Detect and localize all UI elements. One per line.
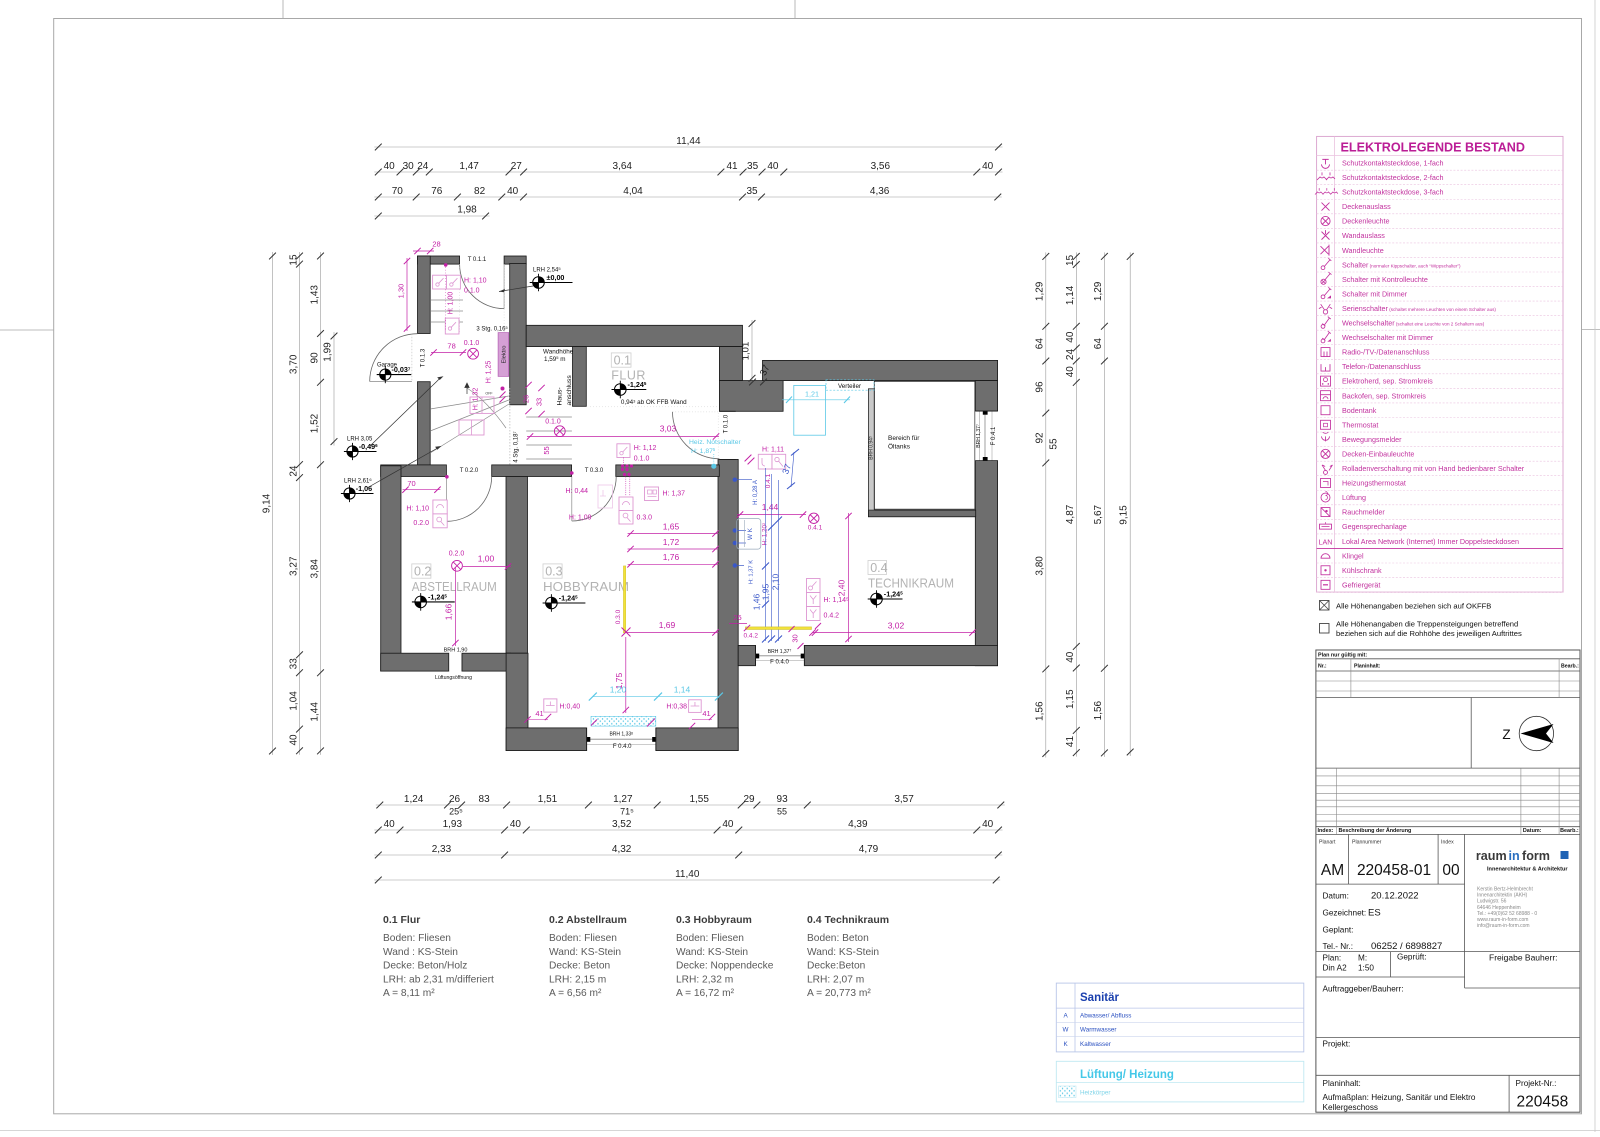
svg-text:1,56: 1,56 <box>1035 701 1046 721</box>
svg-text:0.2 Abstellraum: 0.2 Abstellraum <box>549 914 627 926</box>
svg-text:F 0.4.1: F 0.4.1 <box>991 426 997 445</box>
svg-text:A = 8,11 m²: A = 8,11 m² <box>383 988 435 999</box>
svg-text:Tel.: +49(0)62 52 68988 - 0: Tel.: +49(0)62 52 68988 - 0 <box>1477 911 1537 917</box>
svg-text:Klingel: Klingel <box>1342 551 1364 560</box>
svg-text:26: 26 <box>449 794 461 805</box>
svg-text:Decken-Einbauleuchte: Decken-Einbauleuchte <box>1342 449 1414 458</box>
svg-text:0.3.0: 0.3.0 <box>637 515 653 522</box>
svg-text:in: in <box>1509 849 1520 863</box>
svg-text:83: 83 <box>479 794 491 805</box>
svg-text:Wand: KS-Stein: Wand: KS-Stein <box>807 947 879 958</box>
svg-text:11,40: 11,40 <box>675 869 700 880</box>
svg-text:Beschreibung der Änderung: Beschreibung der Änderung <box>1339 827 1412 834</box>
svg-text:0.2: 0.2 <box>414 564 431 578</box>
svg-text:1,595 m: 1,595 m <box>544 355 566 363</box>
svg-text:1,44: 1,44 <box>309 702 320 722</box>
svg-text:90: 90 <box>309 352 320 364</box>
svg-text:LRH: 2,07 m: LRH: 2,07 m <box>807 974 864 985</box>
svg-text:1,21: 1,21 <box>805 390 819 399</box>
svg-text:Alle Höhenangaben beziehen sic: Alle Höhenangaben beziehen sich auf OKFF… <box>1336 602 1491 611</box>
svg-text:H: 1,10: H: 1,10 <box>406 506 429 513</box>
svg-text:1,20: 1,20 <box>610 684 627 694</box>
svg-text:24: 24 <box>1065 349 1076 361</box>
svg-text:1,52: 1,52 <box>309 413 320 433</box>
svg-text:1,44: 1,44 <box>762 502 779 512</box>
svg-text:0.3: 0.3 <box>545 564 562 578</box>
svg-text:BRH 1,377: BRH 1,377 <box>768 649 792 655</box>
svg-text:71⁵: 71⁵ <box>620 807 634 817</box>
svg-text:T 0.1.1: T 0.1.1 <box>468 257 487 263</box>
svg-text:1,51: 1,51 <box>538 794 558 805</box>
svg-text:OFF: OFF <box>485 392 493 396</box>
svg-text:40: 40 <box>384 819 396 830</box>
svg-text:info@raum-in-form.com: info@raum-in-form.com <box>1477 923 1530 929</box>
svg-text:Backofen, sep. Stromkreis: Backofen, sep. Stromkreis <box>1342 391 1426 400</box>
svg-text:Index: Index <box>1441 840 1454 846</box>
svg-text:Kerstin Bertz-Helmbrecht: Kerstin Bertz-Helmbrecht <box>1477 887 1533 893</box>
svg-text:55: 55 <box>1049 438 1060 450</box>
svg-text:0.1.0: 0.1.0 <box>545 419 561 426</box>
svg-text:40: 40 <box>507 186 519 197</box>
svg-text:H: 1,10: H: 1,10 <box>464 278 487 285</box>
svg-text:Bodentank: Bodentank <box>1342 406 1377 415</box>
svg-text:Gegensprechanlage: Gegensprechanlage <box>1342 522 1407 531</box>
svg-text:Deckenauslass: Deckenauslass <box>1342 202 1391 211</box>
svg-text:1,43: 1,43 <box>309 285 320 305</box>
svg-text:Schutzkontaktsteckdose, 2-fach: Schutzkontaktsteckdose, 2-fach <box>1342 173 1443 182</box>
svg-text:3,80: 3,80 <box>1035 556 1046 576</box>
svg-text:40: 40 <box>722 819 734 830</box>
svg-text:1,95: 1,95 <box>761 583 771 600</box>
svg-text:Projekt:: Projekt: <box>1323 1040 1351 1049</box>
svg-text:Aufmaßplan: Heizung, Sanitär u: Aufmaßplan: Heizung, Sanitär und Elektro <box>1323 1093 1476 1102</box>
svg-text:Decke:Beton: Decke:Beton <box>807 961 865 972</box>
svg-text:Wandleuchte: Wandleuchte <box>1342 246 1384 255</box>
svg-text:Plannummer: Plannummer <box>1352 840 1382 846</box>
svg-text:Radio-/TV-/Datenanschluss: Radio-/TV-/Datenanschluss <box>1342 348 1430 357</box>
svg-text:1,55: 1,55 <box>689 794 709 805</box>
svg-text:40: 40 <box>288 734 299 746</box>
svg-text:1,00: 1,00 <box>478 554 495 564</box>
svg-text:Ludwigstr. 56: Ludwigstr. 56 <box>1477 899 1507 905</box>
svg-text:41: 41 <box>726 161 738 172</box>
svg-text:35: 35 <box>747 161 759 172</box>
svg-text:Warmwasser: Warmwasser <box>1080 1027 1117 1034</box>
svg-text:Thermostat: Thermostat <box>1342 420 1378 429</box>
svg-text:1,14: 1,14 <box>1065 285 1076 305</box>
svg-text:1,29: 1,29 <box>1093 281 1104 301</box>
svg-text:41: 41 <box>535 709 543 718</box>
svg-text:Decke: Beton: Decke: Beton <box>549 961 610 972</box>
svg-text:Alle Höhenangaben die Treppens: Alle Höhenangaben die Treppensteigungen … <box>1336 620 1518 629</box>
svg-text:form: form <box>1522 849 1550 863</box>
svg-text:15: 15 <box>288 254 299 266</box>
svg-text:Projekt-Nr.:: Projekt-Nr.: <box>1516 1079 1557 1088</box>
svg-text:1,56: 1,56 <box>1093 700 1104 720</box>
svg-text:3 Stg. 0,165: 3 Stg. 0,165 <box>476 326 507 332</box>
svg-text:Wand: KS-Stein: Wand: KS-Stein <box>676 947 748 958</box>
svg-text:1,65: 1,65 <box>663 521 680 531</box>
svg-text:T 0.1.0: T 0.1.0 <box>724 414 730 433</box>
svg-text:F 0.4.0: F 0.4.0 <box>770 660 789 666</box>
svg-text:92: 92 <box>1035 432 1046 444</box>
svg-text:H: 1,32: H: 1,32 <box>473 388 480 411</box>
svg-text:Lokal Area Network (Internet): Lokal Area Network (Internet) Immer Dopp… <box>1342 537 1519 546</box>
svg-text:00: 00 <box>1442 862 1460 879</box>
svg-text:0.1: 0.1 <box>614 353 631 367</box>
svg-text:0.1 Flur: 0.1 Flur <box>383 914 420 926</box>
svg-text:AM: AM <box>1321 862 1344 879</box>
svg-text:5,67: 5,67 <box>1093 504 1104 524</box>
svg-text:M:: M: <box>1358 954 1367 963</box>
svg-text:4,87: 4,87 <box>1065 504 1076 524</box>
svg-text:TECHNIKRAUM: TECHNIKRAUM <box>868 577 954 591</box>
svg-text:Decke: Noppendecke: Decke: Noppendecke <box>676 961 774 972</box>
svg-text:T 0.3.0: T 0.3.0 <box>585 468 604 474</box>
svg-text:40: 40 <box>1065 651 1076 663</box>
svg-text:27: 27 <box>511 161 523 172</box>
svg-text:Elektroherd, sep. Stromkreis: Elektroherd, sep. Stromkreis <box>1342 377 1433 386</box>
svg-text:0.3.0: 0.3.0 <box>615 609 622 624</box>
svg-text:1,69: 1,69 <box>659 620 676 630</box>
svg-text:41: 41 <box>702 709 710 718</box>
svg-text:Schalter mit Kontrolleuchte: Schalter mit Kontrolleuchte <box>1342 275 1428 284</box>
svg-text:Elektro: Elektro <box>502 345 508 363</box>
svg-text:1,27: 1,27 <box>613 794 633 805</box>
svg-text:35: 35 <box>746 186 758 197</box>
svg-text:Wand : KS-Stein: Wand : KS-Stein <box>383 947 458 958</box>
svg-text:3,52: 3,52 <box>612 819 632 830</box>
svg-text:3,64: 3,64 <box>613 161 633 172</box>
svg-text:Gezeichnet:: Gezeichnet: <box>1323 909 1367 918</box>
svg-text:Bereich für: Bereich für <box>888 435 920 442</box>
svg-text:H: 1,12: H: 1,12 <box>634 445 657 452</box>
svg-text:40: 40 <box>384 161 396 172</box>
svg-text:W: W <box>1063 1027 1069 1034</box>
svg-text:Planinhalt:: Planinhalt: <box>1323 1079 1361 1088</box>
svg-text:beziehen sich auf die Rohhöhe: beziehen sich auf die Rohhöhe des jeweil… <box>1336 629 1522 638</box>
svg-text:Auftraggeber/Bauherr:: Auftraggeber/Bauherr: <box>1323 985 1404 994</box>
svg-text:H: 1,37 K: H: 1,37 K <box>749 560 755 584</box>
svg-text:Verteiler: Verteiler <box>838 383 861 390</box>
svg-text:40: 40 <box>1065 366 1076 378</box>
svg-text:55: 55 <box>777 807 787 817</box>
svg-text:Datum:: Datum: <box>1523 828 1542 834</box>
svg-text:41: 41 <box>1065 736 1076 748</box>
svg-text:1,66: 1,66 <box>444 603 454 620</box>
svg-text:Abwasser/ Abfluss: Abwasser/ Abfluss <box>1080 1013 1131 1020</box>
svg-text:raum: raum <box>1476 849 1507 863</box>
svg-text:1,24: 1,24 <box>404 794 424 805</box>
svg-text:ELEKTROLEGENDE BESTAND: ELEKTROLEGENDE BESTAND <box>1341 141 1526 155</box>
svg-text:BRH 1,338: BRH 1,338 <box>609 731 633 737</box>
svg-text:Index:: Index: <box>1318 828 1334 834</box>
svg-text:Schutzkontaktsteckdose, 1-fach: Schutzkontaktsteckdose, 1-fach <box>1342 158 1443 167</box>
svg-text:Boden: Fliesen: Boden: Fliesen <box>383 933 451 944</box>
svg-text:1,93: 1,93 <box>443 819 463 830</box>
svg-text:LAN: LAN <box>1319 537 1333 546</box>
svg-text:Nr.:: Nr.: <box>1318 664 1327 670</box>
svg-text:A = 6,56 m²: A = 6,56 m² <box>549 988 602 999</box>
svg-text:0.4.1: 0.4.1 <box>765 473 772 488</box>
svg-text:Öltanks: Öltanks <box>888 443 911 451</box>
svg-text:Bearb.:: Bearb.: <box>1561 664 1579 670</box>
svg-text:H:0,38: H:0,38 <box>666 704 687 711</box>
svg-text:H: 1,202: H: 1,202 <box>761 522 769 545</box>
svg-text:4,79: 4,79 <box>859 844 879 855</box>
svg-text:Innenarchitektin (AKH): Innenarchitektin (AKH) <box>1477 893 1528 899</box>
svg-text:anschluss: anschluss <box>566 375 573 406</box>
svg-text:Heiz. Notschalter: Heiz. Notschalter <box>689 439 741 446</box>
svg-text:0.2.0: 0.2.0 <box>449 551 465 558</box>
svg-text:2,40: 2,40 <box>837 579 847 596</box>
svg-text:LRH: ab 2,31 m/differiert: LRH: ab 2,31 m/differiert <box>383 974 494 985</box>
svg-text:24: 24 <box>288 465 299 477</box>
svg-text:0.4.2: 0.4.2 <box>824 613 840 620</box>
svg-text:0.1.0: 0.1.0 <box>464 288 480 295</box>
svg-text:BRH 1,90: BRH 1,90 <box>444 647 468 653</box>
svg-text:H: 1,09: H: 1,09 <box>569 515 592 522</box>
svg-text:F 0.4.0: F 0.4.0 <box>613 744 632 750</box>
svg-text:3,84: 3,84 <box>309 559 320 579</box>
svg-text:96: 96 <box>1035 381 1046 393</box>
svg-text:Haus-: Haus- <box>557 387 564 405</box>
svg-text:70: 70 <box>392 186 404 197</box>
svg-text:40: 40 <box>1065 331 1076 343</box>
svg-text:1,30: 1,30 <box>397 284 406 299</box>
svg-text:Planart: Planart <box>1319 840 1336 846</box>
svg-text:BRH 0,945: BRH 0,945 <box>868 436 874 460</box>
svg-text:H: 0,44: H: 0,44 <box>566 488 589 495</box>
svg-text:25: 25 <box>733 613 741 622</box>
svg-text:Gefriergerät: Gefriergerät <box>1342 580 1380 589</box>
svg-text:1,98: 1,98 <box>457 205 477 216</box>
svg-text:0.1.0: 0.1.0 <box>634 456 650 463</box>
svg-text:33: 33 <box>535 398 544 406</box>
svg-text:0.4.1: 0.4.1 <box>808 525 823 532</box>
svg-text:Din A2: Din A2 <box>1323 964 1348 973</box>
svg-text:29: 29 <box>743 794 755 805</box>
svg-text:Tel.- Nr.:: Tel.- Nr.: <box>1323 942 1353 951</box>
svg-text:Lüftung: Lüftung <box>1342 493 1366 502</box>
svg-text:55: 55 <box>542 446 551 454</box>
svg-text:2,10: 2,10 <box>771 573 781 590</box>
svg-text:BRH 1,377: BRH 1,377 <box>976 424 982 448</box>
svg-text:4 Stg. 0,187: 4 Stg. 0,187 <box>513 431 519 462</box>
svg-text:9,15: 9,15 <box>1119 505 1130 525</box>
svg-text:64646 Heppenheim: 64646 Heppenheim <box>1477 905 1521 911</box>
svg-text:ES: ES <box>1368 908 1381 919</box>
svg-text:Boden: Fliesen: Boden: Fliesen <box>549 933 617 944</box>
svg-text:0.4: 0.4 <box>870 561 887 575</box>
svg-text:40: 40 <box>510 819 522 830</box>
svg-text:3,03: 3,03 <box>660 424 677 434</box>
svg-text:Lüftung/ Heizung: Lüftung/ Heizung <box>1080 1069 1174 1081</box>
svg-text:H: 1,875: H: 1,875 <box>691 447 716 455</box>
svg-text:40: 40 <box>982 819 994 830</box>
svg-text:28: 28 <box>432 240 440 249</box>
svg-text:Rauchmelder: Rauchmelder <box>1342 508 1385 517</box>
svg-text:4,04: 4,04 <box>623 186 643 197</box>
svg-text:Sanitär: Sanitär <box>1080 992 1120 1004</box>
svg-text:1,99: 1,99 <box>323 342 334 362</box>
svg-text:1,29: 1,29 <box>1035 281 1046 301</box>
svg-text:Boden: Fliesen: Boden: Fliesen <box>676 933 744 944</box>
svg-text:www.raum-in-form.com: www.raum-in-form.com <box>1477 917 1528 923</box>
svg-text:93: 93 <box>777 794 789 805</box>
svg-text:1,47: 1,47 <box>459 161 479 172</box>
svg-text:1,01: 1,01 <box>741 342 752 361</box>
svg-text:78: 78 <box>447 342 455 351</box>
svg-text:4,36: 4,36 <box>870 186 890 197</box>
svg-text:Plan:: Plan: <box>1323 954 1342 963</box>
svg-text:Innenarchitektur & Architektur: Innenarchitektur & Architektur <box>1487 866 1568 872</box>
svg-text:Heizungsthermostat: Heizungsthermostat <box>1342 479 1406 488</box>
svg-text:Wand: KS-Stein: Wand: KS-Stein <box>549 947 621 958</box>
svg-text:220458: 220458 <box>1517 1094 1569 1111</box>
svg-text:1:50: 1:50 <box>1358 964 1374 973</box>
svg-text:0.3 Hobbyraum: 0.3 Hobbyraum <box>676 914 752 926</box>
svg-text:Z: Z <box>1502 727 1510 742</box>
svg-text:Bearb.:: Bearb.: <box>1560 828 1579 834</box>
svg-text:64: 64 <box>1093 338 1104 350</box>
svg-text:-1,06: -1,06 <box>356 484 372 493</box>
svg-text:3,57: 3,57 <box>894 794 914 805</box>
svg-text:0.4.2: 0.4.2 <box>744 633 759 640</box>
svg-text:Geplant:: Geplant: <box>1323 926 1354 935</box>
svg-text:1,14: 1,14 <box>674 684 691 694</box>
svg-text:LRH: 2,15 m: LRH: 2,15 m <box>549 974 606 985</box>
svg-text:4,32: 4,32 <box>612 844 632 855</box>
svg-text:Wandauslass: Wandauslass <box>1342 231 1385 240</box>
svg-text:A = 20,773 m²: A = 20,773 m² <box>807 988 871 999</box>
svg-text:26: 26 <box>522 395 531 403</box>
svg-text:±0,00: ±0,00 <box>547 273 565 282</box>
svg-text:11,44: 11,44 <box>676 136 701 147</box>
svg-text:40: 40 <box>982 161 994 172</box>
svg-text:Heizkörper: Heizkörper <box>1080 1090 1110 1097</box>
svg-text:Planinhalt:: Planinhalt: <box>1354 664 1381 670</box>
svg-text:76: 76 <box>431 186 443 197</box>
svg-text:T 0.1.3: T 0.1.3 <box>421 348 427 367</box>
svg-text:2,33: 2,33 <box>432 844 452 855</box>
svg-text:Geprüft:: Geprüft: <box>1397 953 1427 962</box>
svg-text:4,39: 4,39 <box>848 819 868 830</box>
svg-text:H: 1,145: H: 1,145 <box>824 596 850 604</box>
svg-text:Telefon-/Datenanschluss: Telefon-/Datenanschluss <box>1342 362 1421 371</box>
svg-text:Decke: Beton/Holz: Decke: Beton/Holz <box>383 961 467 972</box>
svg-text:06252 / 6898827: 06252 / 6898827 <box>1371 941 1442 952</box>
svg-text:HOBBYRAUM: HOBBYRAUM <box>543 580 629 594</box>
svg-text:0.4 Technikraum: 0.4 Technikraum <box>807 914 889 926</box>
svg-text:H: 0,28 A: H: 0,28 A <box>753 480 759 505</box>
svg-text:3,70: 3,70 <box>288 354 299 374</box>
svg-text:9,14: 9,14 <box>261 493 272 513</box>
svg-text:220458-01: 220458-01 <box>1357 862 1431 879</box>
svg-text:Rolladenverschaltung mit von H: Rolladenverschaltung mit von Hand bedien… <box>1342 464 1525 473</box>
svg-text:LRH: 2,32 m: LRH: 2,32 m <box>676 974 733 985</box>
svg-text:3,27: 3,27 <box>288 556 299 576</box>
svg-text:64: 64 <box>1035 338 1046 350</box>
svg-text:H: 1,11: H: 1,11 <box>762 447 784 454</box>
svg-text:15: 15 <box>1065 254 1076 266</box>
svg-text:0.1.0: 0.1.0 <box>464 340 480 347</box>
svg-text:Plan nur gültig mit:: Plan nur gültig mit: <box>1318 653 1367 659</box>
svg-text:H: 1,25: H: 1,25 <box>486 361 493 384</box>
svg-text:20.12.2022: 20.12.2022 <box>1371 891 1419 902</box>
svg-text:40: 40 <box>767 161 779 172</box>
svg-text:ABSTELLRAUM: ABSTELLRAUM <box>412 580 497 594</box>
svg-text:25⁵: 25⁵ <box>449 807 463 817</box>
svg-text:H: 1,37: H: 1,37 <box>663 491 686 498</box>
svg-text:Kühlschrank: Kühlschrank <box>1342 566 1382 575</box>
svg-text:24: 24 <box>417 161 429 172</box>
svg-text:33: 33 <box>288 658 299 670</box>
svg-text:Deckenleuchte: Deckenleuchte <box>1342 217 1390 226</box>
svg-text:82: 82 <box>474 186 486 197</box>
svg-text:Bewegungsmelder: Bewegungsmelder <box>1342 435 1402 444</box>
svg-text:0,943 ab OK FFB Wand: 0,943 ab OK FFB Wand <box>621 399 687 407</box>
svg-text:Freigabe Bauherr:: Freigabe Bauherr: <box>1489 953 1558 963</box>
svg-text:30: 30 <box>791 634 800 642</box>
svg-text:3,02: 3,02 <box>888 620 905 630</box>
svg-text:3,56: 3,56 <box>871 161 891 172</box>
svg-text:Kaltwasser: Kaltwasser <box>1080 1041 1111 1048</box>
svg-text:Wechselschalter mit Dimmer: Wechselschalter mit Dimmer <box>1342 333 1434 342</box>
svg-text:W K: W K <box>747 527 754 540</box>
svg-text:T 0.2.0: T 0.2.0 <box>460 468 479 474</box>
svg-text:Schalter mit Dimmer: Schalter mit Dimmer <box>1342 289 1408 298</box>
svg-text:1,76: 1,76 <box>663 552 680 562</box>
svg-text:1,72: 1,72 <box>663 537 680 547</box>
svg-text:1,15: 1,15 <box>1065 689 1076 709</box>
svg-text:Schutzkontaktsteckdose, 3-fach: Schutzkontaktsteckdose, 3-fach <box>1342 188 1443 197</box>
svg-text:H: 1,00: H: 1,00 <box>448 292 455 315</box>
svg-text:Kellergeschoss: Kellergeschoss <box>1323 1103 1379 1112</box>
svg-text:Datum:: Datum: <box>1323 892 1349 901</box>
svg-text:0.2.0: 0.2.0 <box>413 520 429 527</box>
svg-text:1,04: 1,04 <box>288 691 299 711</box>
svg-text:Lüftungsöffnung: Lüftungsöffnung <box>435 675 472 681</box>
svg-text:A = 16,72 m²: A = 16,72 m² <box>676 988 735 999</box>
svg-text:Boden: Beton: Boden: Beton <box>807 933 869 944</box>
svg-text:H:0,40: H:0,40 <box>560 704 581 711</box>
svg-text:30: 30 <box>403 161 415 172</box>
